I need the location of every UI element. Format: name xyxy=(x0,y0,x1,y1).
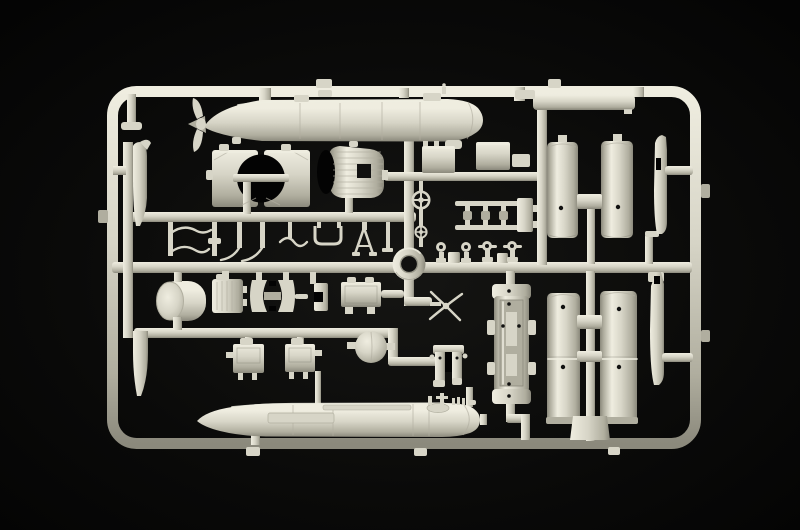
prop-hub xyxy=(443,303,449,309)
clamp-plates-part xyxy=(206,144,310,214)
deck-tooth xyxy=(452,398,455,405)
box-stub xyxy=(381,290,404,298)
deck-tooth xyxy=(462,398,465,405)
gate-stub xyxy=(608,447,620,455)
sprue-photo xyxy=(0,0,800,530)
shell-column-bottom-right xyxy=(599,291,638,424)
plate xyxy=(422,146,455,173)
bracket-prong xyxy=(452,352,462,381)
rail-end-plate xyxy=(517,198,533,232)
small-clamp-stub xyxy=(310,272,316,284)
bracket-hole xyxy=(439,357,442,360)
cradle-clip xyxy=(487,320,495,335)
shell-hole xyxy=(616,205,620,209)
runner-segment xyxy=(404,140,414,250)
box-side-pin xyxy=(315,350,322,356)
wheel-stem xyxy=(419,181,423,192)
bracket-hole xyxy=(456,357,459,360)
rail-boss xyxy=(499,211,508,220)
hanging-stub xyxy=(127,94,136,124)
gate-stub xyxy=(316,79,332,88)
sprue-photo-canvas xyxy=(0,0,800,530)
ball-float xyxy=(355,331,387,363)
block-bump xyxy=(243,286,247,293)
clamp-tab xyxy=(281,144,291,151)
gate-stub xyxy=(633,87,644,97)
cradle-slot xyxy=(506,312,517,346)
cowling-link xyxy=(382,170,388,180)
shell-connector-plate xyxy=(577,351,602,362)
deck-nub xyxy=(468,400,476,405)
cowling-bite xyxy=(317,150,335,194)
cradle-cap xyxy=(492,389,531,404)
frame-tab xyxy=(318,90,332,97)
propeller-hub xyxy=(196,118,206,130)
bar-nub xyxy=(515,90,535,99)
box-tab xyxy=(347,277,356,283)
runner-segment xyxy=(128,212,416,222)
eyelet-hole xyxy=(439,245,443,249)
eyelet-post xyxy=(439,252,444,258)
box-top-tab xyxy=(291,338,303,345)
center-ring xyxy=(393,248,426,281)
gate-stub xyxy=(98,210,108,223)
bracket-nub xyxy=(430,355,435,360)
box-foot xyxy=(345,307,353,314)
eyelet-post xyxy=(510,250,515,257)
cradle-hole xyxy=(507,289,511,293)
h-clamp-notch xyxy=(269,306,276,311)
cradle-hole xyxy=(517,324,521,328)
blade-stub xyxy=(662,353,693,362)
shell-connector-plate xyxy=(577,315,602,329)
shell-connector-plate xyxy=(577,194,602,209)
runner-segment xyxy=(404,297,432,306)
eyelet-hole xyxy=(485,244,489,248)
shell-hole xyxy=(617,307,621,311)
cradle-hole xyxy=(501,324,505,328)
shell-hole xyxy=(561,365,565,369)
wheel-stem xyxy=(419,208,423,226)
shell-column-top-right xyxy=(601,134,633,238)
cup-stub xyxy=(173,317,182,330)
rail-boss xyxy=(463,211,472,220)
gate-stub xyxy=(246,447,260,456)
fitting-block xyxy=(497,253,508,263)
blade-notch xyxy=(654,276,660,284)
block-bump xyxy=(243,299,247,306)
cowling-stub xyxy=(345,198,353,213)
cradle-hole xyxy=(507,382,511,386)
plate-small xyxy=(512,154,530,167)
hanging-stub-foot xyxy=(121,122,142,130)
box-foot-pin xyxy=(289,372,294,379)
shell-hole xyxy=(617,365,621,369)
bracket-foot xyxy=(452,378,462,385)
handwheel-hub xyxy=(418,197,424,203)
h-clamp-stub xyxy=(283,272,289,281)
eyelet-post xyxy=(464,252,469,258)
h-clamp-notch xyxy=(269,281,276,286)
mast xyxy=(428,396,432,405)
handwheel-hub-small xyxy=(419,230,423,234)
cowling-hole xyxy=(357,164,371,178)
eyelet-base xyxy=(436,258,446,263)
runner-segment xyxy=(645,236,653,264)
box-foot-pin xyxy=(303,372,308,379)
runner-segment xyxy=(315,371,321,407)
box-side-pin xyxy=(226,352,233,358)
top-fairing xyxy=(294,95,309,102)
box-foot-pin xyxy=(252,373,257,380)
shell-top-tab xyxy=(613,134,622,142)
a-frame-foot xyxy=(369,252,377,256)
blade-stub xyxy=(665,166,693,175)
gate-stub xyxy=(399,88,409,98)
clamp-stem xyxy=(243,182,251,214)
small-clamp-pin-tip xyxy=(295,294,300,299)
eyelet-base xyxy=(461,258,471,263)
fitting-pin xyxy=(386,222,390,250)
shell-top-tab xyxy=(558,135,567,143)
block-stub xyxy=(222,271,229,280)
fitting-pin xyxy=(260,222,265,248)
cradle-slot xyxy=(506,354,517,376)
shell-bottom-connector xyxy=(570,416,610,440)
eyelet-base xyxy=(482,257,493,262)
shell-column-top-left xyxy=(547,135,578,238)
fitting-block xyxy=(448,252,460,263)
fitting-flag xyxy=(208,238,221,244)
cradle-clip xyxy=(487,362,495,375)
clamp-tab xyxy=(219,144,229,151)
h-clamp-stub xyxy=(256,272,262,281)
runner-segment xyxy=(521,414,530,440)
bracket-nub xyxy=(463,354,468,359)
cradle-part xyxy=(487,284,536,404)
cradle-hole xyxy=(507,394,511,398)
cowling-tab xyxy=(349,141,358,147)
fitting-post xyxy=(288,222,292,238)
mast xyxy=(442,87,446,94)
eyelet-post xyxy=(485,250,490,257)
shell-body xyxy=(547,142,578,238)
shell-body xyxy=(601,141,633,238)
box-top-tab xyxy=(240,338,253,345)
tail-fairing xyxy=(423,93,441,101)
under-fin xyxy=(232,137,241,144)
eyelet-base xyxy=(507,257,518,262)
gate-stub xyxy=(548,79,561,88)
shell-hole xyxy=(559,206,563,210)
bar-tab xyxy=(624,109,632,114)
box-tab xyxy=(365,277,374,283)
blade-notch xyxy=(656,158,661,170)
runner-segment xyxy=(384,172,548,181)
cradle-clip xyxy=(528,320,536,335)
shell-column-bottom-left xyxy=(546,293,581,424)
clamp-tab xyxy=(206,170,213,180)
small-clamp-bite xyxy=(314,292,323,302)
runner-segment xyxy=(386,343,395,350)
runner-segment xyxy=(347,342,356,349)
gate-stub xyxy=(480,414,487,425)
blade-body xyxy=(654,135,667,234)
deck-ridge xyxy=(323,405,411,410)
rail-boss xyxy=(481,211,490,220)
fitting-pin xyxy=(237,222,242,248)
box-foot xyxy=(367,307,375,314)
blade-body xyxy=(650,272,664,385)
wheel-stem xyxy=(419,238,423,247)
bracket-foot xyxy=(433,380,445,387)
shell-hole xyxy=(561,305,565,309)
eyelet-hole xyxy=(510,244,514,248)
cup-stub xyxy=(174,272,182,282)
box-foot-pin xyxy=(238,373,243,380)
cowling-body xyxy=(329,146,384,198)
bar-body xyxy=(533,95,635,110)
fitting-foot xyxy=(382,248,393,252)
cup-face xyxy=(157,282,184,320)
clamp-tbar xyxy=(233,174,289,182)
mast-tip xyxy=(442,83,446,87)
runner-segment xyxy=(537,108,547,265)
cradle-hole xyxy=(507,302,511,306)
eyelet-hole xyxy=(464,245,468,249)
deck-tooth xyxy=(457,397,460,405)
gate-stub xyxy=(701,330,710,342)
torpedo-body xyxy=(204,99,483,142)
mast-bar xyxy=(436,396,448,399)
runner-segment xyxy=(587,207,595,264)
plate xyxy=(476,142,510,170)
a-frame-foot xyxy=(352,252,360,256)
gate-stub xyxy=(414,448,427,456)
prop-arm xyxy=(430,302,441,306)
fitting-stub xyxy=(317,222,321,228)
gate-stub xyxy=(701,184,710,198)
cradle-clip xyxy=(528,362,536,375)
h-clamp-link xyxy=(264,292,281,300)
bracket-gap xyxy=(445,352,452,372)
shell-body xyxy=(547,293,580,423)
side-panel xyxy=(268,413,334,423)
runner-segment xyxy=(113,166,126,175)
